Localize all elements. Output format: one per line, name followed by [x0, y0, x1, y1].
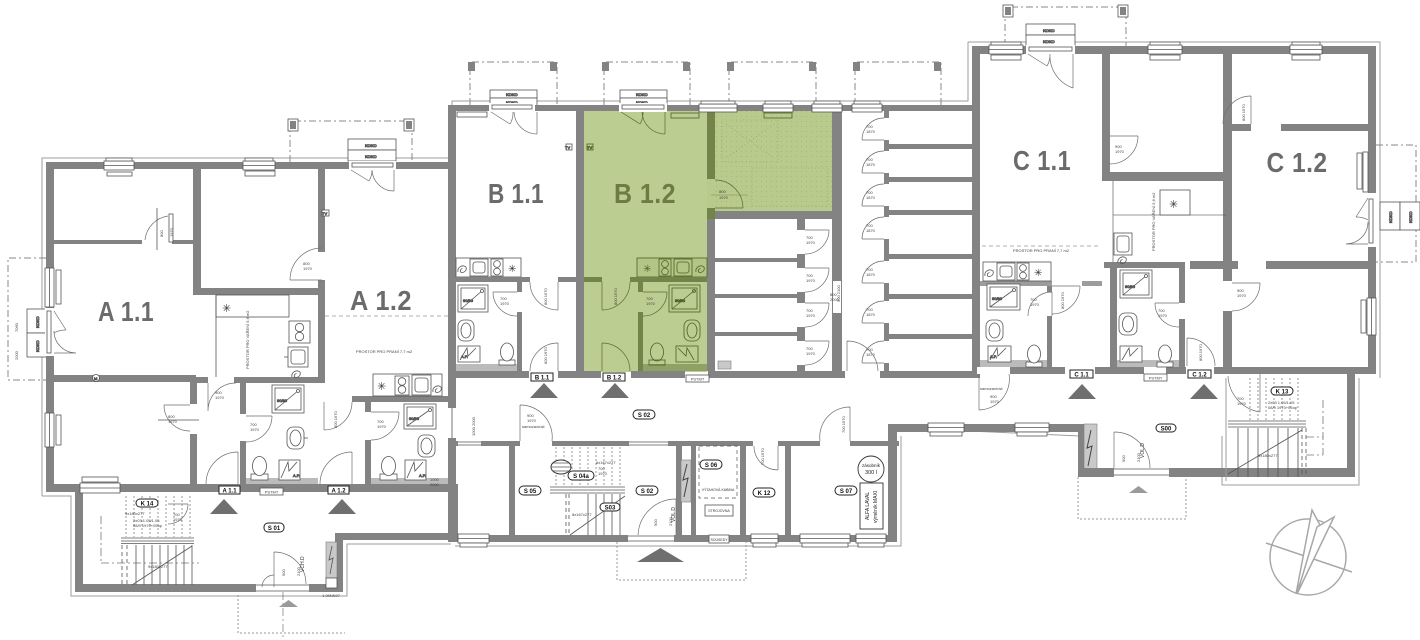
svg-text:VOL.D: VOL.D: [1140, 443, 1146, 458]
svg-text:A.P.: A.P.: [419, 473, 426, 478]
svg-text:VÝTAHOVÁ KABINA: VÝTAHOVÁ KABINA: [702, 488, 735, 492]
svg-text:9x180x277: 9x180x277: [148, 564, 168, 569]
svg-text:PROSTOR PRO PRANÍ 7,7 m2: PROSTOR PRO PRANÍ 7,7 m2: [356, 349, 413, 354]
svg-text:A.P.: A.P.: [293, 473, 300, 478]
svg-text:STROJOVNA: STROJOVNA: [708, 509, 730, 513]
svg-text:800: 800: [159, 230, 164, 237]
svg-text:PSTMT: PSTMT: [691, 377, 705, 382]
svg-text:A 1.1: A 1.1: [98, 296, 154, 327]
svg-text:800 1970: 800 1970: [1241, 104, 1246, 121]
svg-text:samozavírač: samozavírač: [980, 386, 1003, 391]
svg-text:C 1.2: C 1.2: [1267, 147, 1328, 178]
svg-text:B 1.2: B 1.2: [614, 178, 676, 209]
svg-text:800: 800: [719, 189, 726, 194]
svg-text:1970: 1970: [806, 240, 816, 245]
svg-text:1970: 1970: [806, 278, 816, 283]
svg-text:800 1970: 800 1970: [333, 411, 338, 428]
svg-text:✳: ✳: [508, 264, 516, 275]
svg-text:PROSTOR PRO VAŘENÍ 5,6 m2: PROSTOR PRO VAŘENÍ 5,6 m2: [1151, 192, 1156, 251]
svg-text:2000: 2000: [430, 482, 440, 487]
svg-text:výměník MAXI: výměník MAXI: [873, 491, 879, 523]
svg-text:KOKO: KOKO: [35, 316, 40, 328]
svg-text:90/90: 90/90: [992, 296, 1003, 301]
svg-text:SOUSEDY: SOUSEDY: [710, 538, 728, 542]
svg-text:ALFA LAVAL: ALFA LAVAL: [865, 492, 871, 520]
svg-text:1970: 1970: [173, 517, 183, 522]
svg-text:300 l: 300 l: [865, 470, 877, 476]
svg-text:S03: S03: [605, 506, 616, 512]
svg-text:KOKO: KOKO: [1043, 39, 1055, 44]
svg-text:1870: 1870: [866, 352, 876, 357]
svg-text:A 1.2: A 1.2: [331, 489, 346, 495]
svg-text:1970: 1970: [806, 351, 816, 356]
svg-text:VOL.D: VOL.D: [671, 507, 677, 522]
svg-text:1870: 1870: [866, 312, 876, 317]
svg-text:800 1970: 800 1970: [1060, 292, 1065, 309]
svg-text:1970: 1970: [1237, 401, 1247, 406]
svg-text:1870: 1870: [866, 162, 876, 167]
svg-text:900: 900: [653, 519, 658, 526]
svg-text:KOKO: KOKO: [365, 154, 377, 159]
svg-text:B 1.1: B 1.1: [535, 376, 550, 382]
svg-text:2000: 2000: [14, 350, 19, 360]
svg-text:90/90: 90/90: [463, 298, 474, 303]
svg-text:08/9 1970+05op: 08/9 1970+05op: [1268, 405, 1298, 410]
svg-text:1970: 1970: [990, 399, 1000, 404]
svg-text:C 1.1: C 1.1: [1013, 145, 1071, 176]
svg-text:B 1.2: B 1.2: [607, 376, 622, 382]
svg-text:1870: 1870: [866, 195, 876, 200]
svg-text:S 01: S 01: [268, 526, 281, 532]
svg-text:✳: ✳: [1034, 268, 1042, 279]
svg-text:1970: 1970: [1158, 313, 1168, 318]
svg-text:6x167x277: 6x167x277: [596, 460, 616, 465]
svg-text:S 04a: S 04a: [573, 474, 589, 480]
svg-text:1.08NN07: 1.08NN07: [322, 593, 341, 598]
svg-text:1970: 1970: [1030, 302, 1040, 307]
svg-text:C 1.1: C 1.1: [1074, 373, 1089, 379]
svg-text:900 2100: 900 2100: [836, 285, 841, 302]
svg-text:KOKO: KOKO: [365, 143, 377, 148]
svg-text:1870: 1870: [866, 129, 876, 134]
svg-text:S 02: S 02: [641, 489, 654, 495]
svg-text:✳: ✳: [1169, 199, 1178, 211]
svg-text:800 1970: 800 1970: [1198, 344, 1203, 361]
svg-text:1970: 1970: [250, 427, 260, 432]
svg-text:1970: 1970: [169, 227, 174, 237]
svg-text:KOKO: KOKO: [636, 92, 648, 97]
svg-text:K 12: K 12: [758, 491, 771, 497]
svg-text:K 13: K 13: [1276, 390, 1289, 396]
svg-text:800 1970: 800 1970: [543, 288, 548, 305]
svg-text:PROSTOR PRO VAŘENÍ 5,6 m2: PROSTOR PRO VAŘENÍ 5,6 m2: [245, 310, 250, 369]
svg-text:PROSTOR PRO PRANÍ 7,7 m2: PROSTOR PRO PRANÍ 7,7 m2: [1013, 248, 1070, 253]
svg-text:90/90: 90/90: [409, 416, 420, 421]
svg-text:1870: 1870: [866, 272, 876, 277]
svg-text:90/90: 90/90: [1125, 284, 1136, 289]
svg-text:1870: 1870: [866, 228, 876, 233]
svg-text:M: M: [94, 376, 97, 381]
svg-text:zásobník: zásobník: [862, 463, 881, 468]
svg-text:S00: S00: [1161, 427, 1172, 433]
svg-text:800 1970: 800 1970: [543, 347, 548, 364]
svg-text:S 05: S 05: [524, 489, 537, 495]
svg-text:1970: 1970: [215, 395, 225, 400]
svg-text:1970: 1970: [646, 301, 656, 306]
svg-text:A 1.2: A 1.2: [350, 285, 412, 316]
svg-text:9x180x277: 9x180x277: [1258, 453, 1278, 458]
svg-text:PSTMT: PSTMT: [265, 490, 279, 495]
svg-text:S 07: S 07: [840, 489, 853, 495]
svg-text:✳: ✳: [222, 303, 231, 315]
svg-text:1970: 1970: [168, 419, 178, 424]
svg-text:TV: TV: [587, 145, 592, 150]
svg-text:KOKO: KOKO: [35, 340, 40, 352]
svg-text:✳: ✳: [377, 381, 386, 393]
svg-text:1970: 1970: [527, 418, 537, 423]
svg-text:7060: 7060: [14, 322, 19, 332]
svg-text:S 02: S 02: [638, 413, 651, 419]
svg-text:✳: ✳: [643, 264, 651, 275]
svg-text:KOKO: KOKO: [1043, 28, 1055, 33]
svg-text:TV: TV: [565, 145, 570, 150]
svg-text:900: 900: [281, 569, 286, 576]
svg-text:C 1.2: C 1.2: [1192, 373, 1207, 379]
svg-text:KOKO: KOKO: [506, 92, 518, 97]
svg-text:90/90: 90/90: [277, 398, 288, 403]
svg-text:1970: 1970: [377, 424, 387, 429]
svg-text:samozavírač: samozavírač: [522, 424, 545, 429]
svg-text:1970: 1970: [806, 313, 816, 318]
svg-text:A.P.: A.P.: [990, 354, 997, 359]
svg-text:KOKO: KOKO: [1388, 211, 1393, 223]
svg-text:1970: 1970: [500, 301, 510, 306]
svg-text:1970: 1970: [1237, 293, 1247, 298]
svg-text:1970: 1970: [1115, 149, 1125, 154]
svg-text:S 06: S 06: [705, 463, 718, 469]
svg-text:9x180x277: 9x180x277: [125, 511, 145, 516]
svg-text:1970: 1970: [719, 195, 729, 200]
svg-text:1970: 1970: [598, 471, 608, 476]
svg-text:K 14: K 14: [141, 502, 154, 508]
svg-text:8x167x277: 8x167x277: [572, 512, 592, 517]
svg-text:800 1970: 800 1970: [613, 288, 618, 305]
svg-text:700 1970: 700 1970: [841, 416, 846, 433]
svg-text:08/9 1970+05op: 08/9 1970+05op: [133, 523, 163, 528]
svg-text:700 1970: 700 1970: [760, 448, 765, 465]
svg-text:KOKO: KOKO: [1408, 211, 1413, 223]
svg-text:A 1.1: A 1.1: [222, 489, 237, 495]
svg-text:B 1.1: B 1.1: [488, 178, 544, 209]
svg-text:900: 900: [1121, 455, 1126, 462]
svg-text:1000 2000: 1000 2000: [471, 416, 476, 436]
svg-text:90/90: 90/90: [675, 298, 686, 303]
svg-text:TV: TV: [322, 211, 327, 216]
svg-text:1970: 1970: [303, 266, 313, 271]
svg-text:A.P.: A.P.: [461, 354, 468, 359]
svg-text:PSTMT: PSTMT: [1149, 376, 1163, 381]
svg-text:VCH.D: VCH.D: [300, 556, 306, 572]
